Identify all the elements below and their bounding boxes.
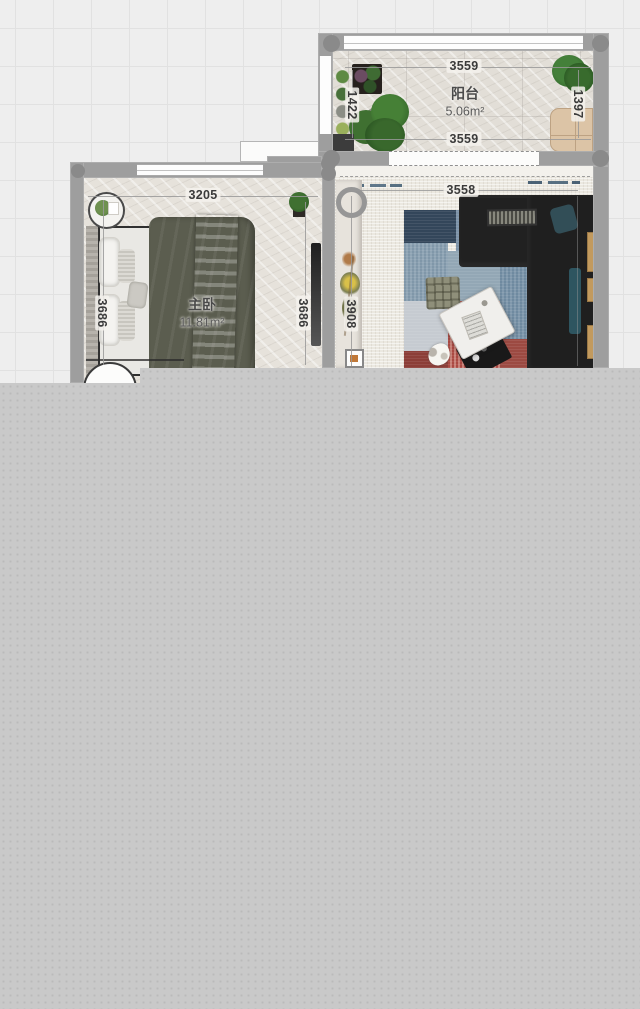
balcony-sliding-door-opening[interactable] (389, 151, 539, 166)
striped-cushion (487, 209, 537, 227)
balcony-window-left[interactable] (319, 56, 332, 134)
balcony-name: 阳台 (446, 84, 485, 104)
teal-pillow (569, 268, 581, 334)
wall-corner-dot (592, 150, 609, 167)
dim-balcony-right: 1397 (571, 86, 585, 121)
dim-living-left: 3908 (344, 296, 358, 331)
bedroom-window-top[interactable] (137, 164, 263, 176)
round-side-table[interactable] (88, 192, 125, 229)
bedroom-area: 11.81m² (180, 316, 225, 330)
unrendered-region (0, 383, 640, 1009)
dimension-line (103, 200, 104, 365)
floor-unit[interactable] (333, 134, 354, 152)
balcony-window-top[interactable] (344, 35, 583, 50)
balcony-wall-right[interactable] (593, 33, 609, 166)
unrendered-region (140, 368, 640, 384)
dimension-line (305, 202, 306, 365)
bedroom-wall-left[interactable] (70, 162, 84, 383)
curtain-dashed-line (340, 176, 590, 177)
double-bed[interactable] (86, 215, 258, 383)
wall-corner-dot (323, 35, 340, 52)
dim-balcony-left: 1422 (345, 87, 359, 122)
dim-living-top: 3558 (443, 183, 478, 197)
picture-frame[interactable] (345, 349, 364, 368)
decor-strokes (528, 178, 580, 186)
bedroom-room-label[interactable]: 主卧 11.81m² (180, 295, 225, 330)
dim-bedroom-top: 3205 (185, 188, 220, 202)
dimension-line (351, 196, 352, 366)
wardrobe[interactable] (311, 243, 321, 346)
dim-bedroom-left: 3686 (95, 295, 109, 330)
dim-balcony-top: 3559 (446, 59, 481, 73)
bedroom-name: 主卧 (180, 295, 225, 315)
balcony-area: 5.06m² (446, 105, 485, 119)
dim-bedroom-right: 3686 (296, 295, 310, 330)
wall-corner-dot (71, 164, 85, 178)
dimension-line (577, 196, 578, 366)
bed-pillow (126, 281, 148, 309)
wall-corner-dot (592, 35, 609, 52)
bedroom-living-shared-wall[interactable] (322, 162, 335, 368)
bed-pillow (118, 249, 135, 283)
living-room-wall-right[interactable] (593, 166, 609, 368)
dim-balcony-bottom: 3559 (446, 132, 481, 146)
bed-foot-line (86, 359, 184, 361)
wall-corner-dot (321, 166, 336, 181)
floorplan-canvas[interactable]: 3559 3559 1422 1397 阳台 5.06m² (0, 0, 640, 1009)
balcony-room-label[interactable]: 阳台 5.06m² (446, 84, 485, 119)
